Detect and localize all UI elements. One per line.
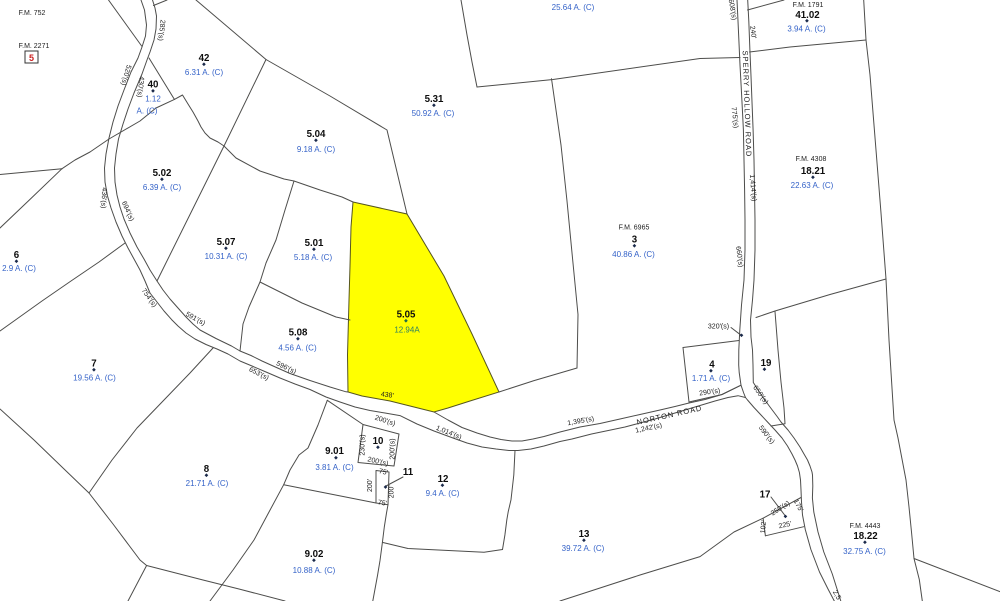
svg-text:40.86 A. (C): 40.86 A. (C)	[612, 250, 655, 259]
svg-text:18.22: 18.22	[853, 531, 877, 542]
svg-text:6.39 A. (C): 6.39 A. (C)	[143, 183, 182, 192]
svg-text:9.4 A. (C): 9.4 A. (C)	[426, 489, 460, 498]
svg-text:50.92 A. (C): 50.92 A. (C)	[412, 109, 455, 118]
svg-text:5: 5	[29, 53, 34, 63]
svg-text:102': 102'	[760, 520, 768, 534]
svg-text:4.56 A. (C): 4.56 A. (C)	[278, 344, 317, 353]
svg-text:200'(s): 200'(s)	[390, 438, 397, 459]
svg-text:5.31: 5.31	[425, 94, 444, 105]
svg-text:F.M. 4308: F.M. 4308	[796, 156, 827, 163]
svg-text:4: 4	[709, 360, 715, 371]
svg-text:11: 11	[403, 467, 414, 478]
svg-text:9.02: 9.02	[305, 549, 324, 560]
svg-text:32.75 A. (C): 32.75 A. (C)	[843, 547, 886, 556]
svg-text:5.02: 5.02	[153, 168, 172, 179]
svg-text:F.M. 2271: F.M. 2271	[19, 43, 50, 50]
svg-text:17: 17	[760, 490, 771, 501]
svg-text:5.04: 5.04	[307, 129, 326, 140]
svg-text:5.07: 5.07	[217, 237, 236, 248]
svg-text:10.31 A. (C): 10.31 A. (C)	[205, 252, 248, 261]
svg-text:22.63 A. (C): 22.63 A. (C)	[791, 181, 834, 190]
svg-text:3: 3	[632, 235, 638, 246]
svg-text:19.56 A. (C): 19.56 A. (C)	[73, 374, 116, 383]
svg-text:9.01: 9.01	[325, 446, 344, 457]
svg-text:39.72 A. (C): 39.72 A. (C)	[562, 544, 605, 553]
svg-text:F.M. 752: F.M. 752	[19, 10, 46, 17]
svg-text:10: 10	[373, 436, 384, 447]
svg-text:3.81 A. (C): 3.81 A. (C)	[315, 463, 354, 472]
svg-text:A. (C): A. (C)	[137, 107, 158, 116]
svg-text:320'(s): 320'(s)	[708, 324, 729, 331]
svg-text:5.01: 5.01	[305, 238, 324, 249]
svg-text:436'(s): 436'(s)	[99, 187, 107, 209]
svg-text:21.71 A. (C): 21.71 A. (C)	[186, 479, 229, 488]
svg-text:10.88 A. (C): 10.88 A. (C)	[293, 566, 336, 575]
svg-text:3.94 A. (C): 3.94 A. (C)	[787, 25, 826, 34]
svg-text:19: 19	[761, 358, 772, 369]
svg-text:7: 7	[91, 359, 96, 370]
svg-text:40: 40	[148, 80, 159, 91]
svg-text:13: 13	[579, 529, 590, 540]
svg-text:F.M. 4443: F.M. 4443	[850, 523, 881, 530]
svg-text:2.9 A. (C): 2.9 A. (C)	[2, 264, 36, 273]
svg-text:9.18 A. (C): 9.18 A. (C)	[297, 145, 336, 154]
svg-text:12.94A: 12.94A	[394, 326, 420, 335]
svg-text:230'(s): 230'(s)	[360, 434, 367, 455]
svg-text:18.21: 18.21	[801, 166, 826, 177]
svg-text:F.M. 1791: F.M. 1791	[793, 2, 824, 9]
svg-text:6.31 A. (C): 6.31 A. (C)	[185, 68, 224, 77]
svg-text:5.05: 5.05	[397, 310, 416, 321]
svg-text:200': 200'	[389, 485, 396, 498]
svg-text:1.71 A. (C): 1.71 A. (C)	[692, 374, 731, 383]
svg-text:8: 8	[204, 464, 210, 475]
svg-text:F.M. 6965: F.M. 6965	[619, 225, 650, 232]
svg-text:42: 42	[199, 53, 210, 64]
svg-text:5.08: 5.08	[289, 328, 308, 339]
svg-text:12: 12	[438, 474, 449, 485]
svg-text:6: 6	[14, 250, 20, 261]
svg-text:200': 200'	[367, 479, 374, 492]
svg-text:25.64 A. (C): 25.64 A. (C)	[552, 3, 595, 12]
svg-text:1.12: 1.12	[145, 95, 161, 104]
svg-text:5.18 A. (C): 5.18 A. (C)	[294, 253, 333, 262]
svg-text:41.02: 41.02	[795, 10, 819, 21]
